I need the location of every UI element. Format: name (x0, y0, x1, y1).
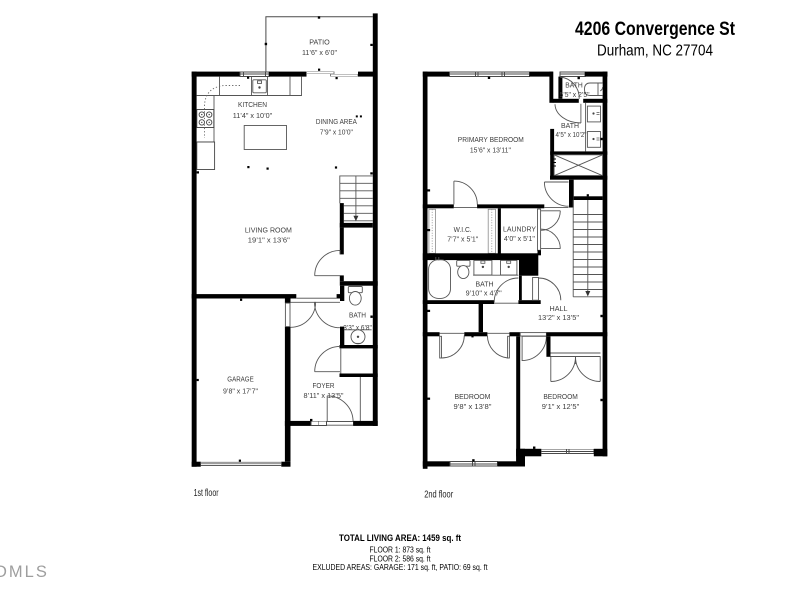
svg-text:GARAGE: GARAGE (227, 375, 254, 384)
svg-text:PRIMARY BEDROOM: PRIMARY BEDROOM (458, 135, 524, 144)
svg-text:19’1" x 13’6": 19’1" x 13’6" (248, 236, 291, 244)
svg-text:BEDROOM: BEDROOM (455, 392, 491, 401)
svg-text:PATIO: PATIO (309, 38, 330, 47)
svg-text:2nd floor: 2nd floor (424, 490, 453, 501)
svg-text:8’11" x 13’5": 8’11" x 13’5" (304, 392, 344, 400)
svg-text:13’2" x 13’5": 13’2" x 13’5" (538, 314, 579, 322)
svg-text:EXLUDED AREAS: GARAGE: 171 sq.: EXLUDED AREAS: GARAGE: 171 sq. ft, PATIO… (313, 562, 489, 572)
svg-text:9’8" x 17’7": 9’8" x 17’7" (223, 388, 258, 396)
svg-text:15’6" x 13’11": 15’6" x 13’11" (470, 147, 511, 155)
svg-text:TOTAL LIVING AREA: 1459 sq. ft: TOTAL LIVING AREA: 1459 sq. ft (339, 533, 461, 543)
svg-text:DMLS: DMLS (0, 563, 49, 581)
svg-text:BATH: BATH (561, 121, 579, 130)
svg-text:9’1" x 12’5": 9’1" x 12’5" (542, 403, 580, 411)
svg-text:3’3" x 6’8": 3’3" x 6’8" (343, 324, 372, 332)
svg-text:9’8" x 13’8": 9’8" x 13’8" (454, 403, 493, 411)
svg-text:BATH: BATH (565, 81, 583, 90)
svg-text:7’9" x 10’0": 7’9" x 10’0" (320, 129, 353, 137)
svg-text:KITCHEN: KITCHEN (238, 100, 267, 109)
svg-text:11’6" x 6’0": 11’6" x 6’0" (302, 49, 337, 57)
svg-text:W.I.C.: W.I.C. (454, 225, 472, 234)
svg-text:BEDROOM: BEDROOM (543, 392, 578, 401)
svg-text:HALL: HALL (550, 304, 568, 313)
svg-text:BATH: BATH (476, 279, 494, 288)
svg-text:BATH: BATH (349, 311, 366, 320)
svg-text:1st floor: 1st floor (194, 488, 219, 499)
svg-text:4206 Convergence St: 4206 Convergence St (575, 18, 735, 40)
svg-text:LIVING ROOM: LIVING ROOM (245, 225, 292, 234)
svg-text:DINING AREA: DINING AREA (316, 117, 358, 126)
svg-text:11’4" x 10’0": 11’4" x 10’0" (233, 112, 273, 120)
svg-text:Durham, NC 27704: Durham, NC 27704 (597, 43, 713, 60)
svg-text:LAUNDRY: LAUNDRY (503, 224, 536, 233)
svg-text:4’5" x 10’2": 4’5" x 10’2" (556, 131, 587, 139)
svg-text:FOYER: FOYER (313, 381, 335, 390)
svg-text:7’7" x 5’1": 7’7" x 5’1" (447, 235, 478, 243)
svg-text:5’5" x 2’5": 5’5" x 2’5" (560, 91, 590, 99)
svg-text:4’0" x 5’1": 4’0" x 5’1" (504, 235, 535, 243)
